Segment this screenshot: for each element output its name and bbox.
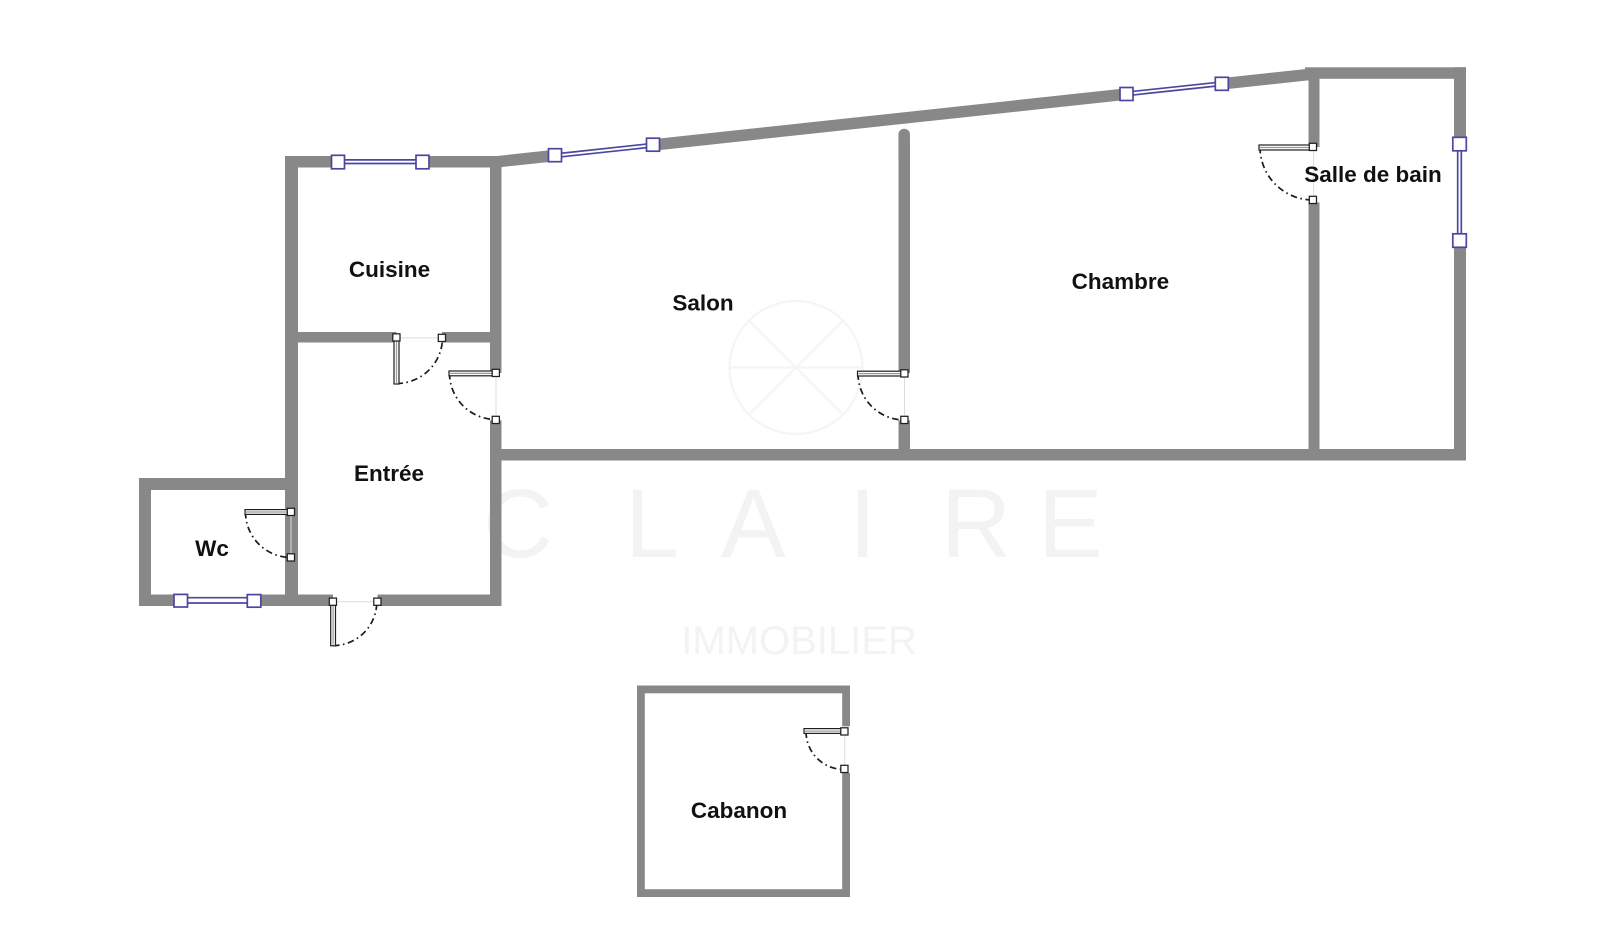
svg-text:Chambre: Chambre <box>1072 269 1170 294</box>
svg-text:Salon: Salon <box>672 291 733 316</box>
svg-text:I: I <box>849 469 876 578</box>
svg-text:Cuisine: Cuisine <box>349 257 430 282</box>
svg-text:E: E <box>1038 469 1103 578</box>
svg-text:L: L <box>625 469 679 578</box>
svg-text:Wc: Wc <box>195 536 229 561</box>
svg-text:IMMOBILIER: IMMOBILIER <box>681 619 917 663</box>
svg-text:R: R <box>941 469 1011 578</box>
svg-text:Entrée: Entrée <box>354 461 424 486</box>
svg-text:A: A <box>721 469 786 578</box>
svg-text:Cabanon: Cabanon <box>691 798 787 823</box>
svg-text:Salle de bain: Salle de bain <box>1304 162 1442 187</box>
